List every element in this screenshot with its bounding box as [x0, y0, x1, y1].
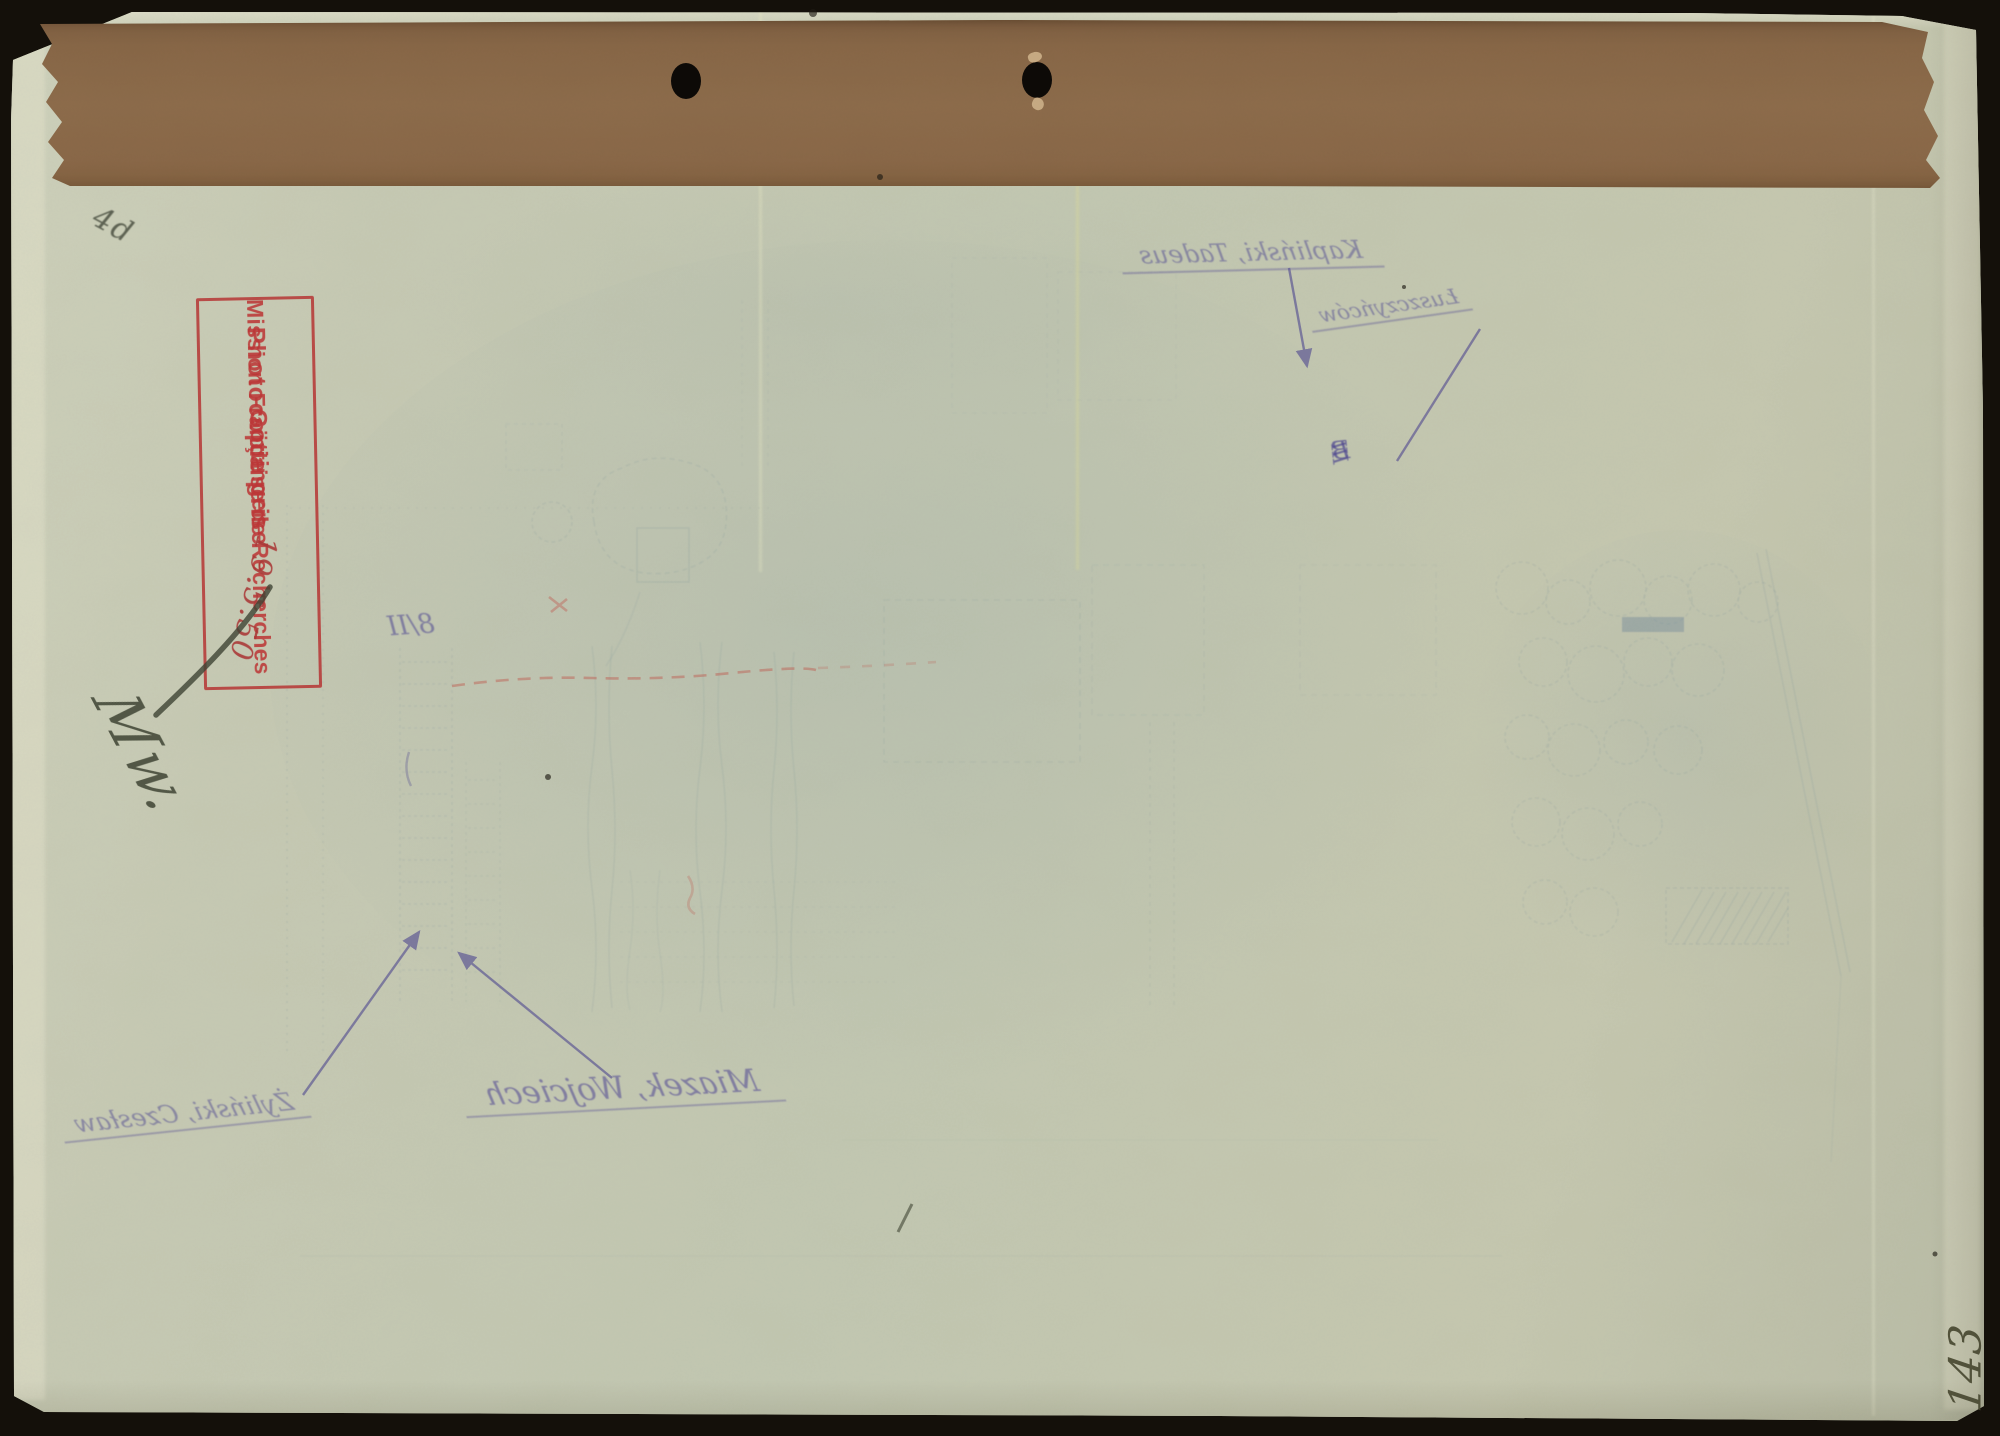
dust-specks [0, 0, 2000, 1436]
scanned-page: Kapliński, Tadeus Łuszczyńców B III 8/II… [0, 0, 2000, 1436]
